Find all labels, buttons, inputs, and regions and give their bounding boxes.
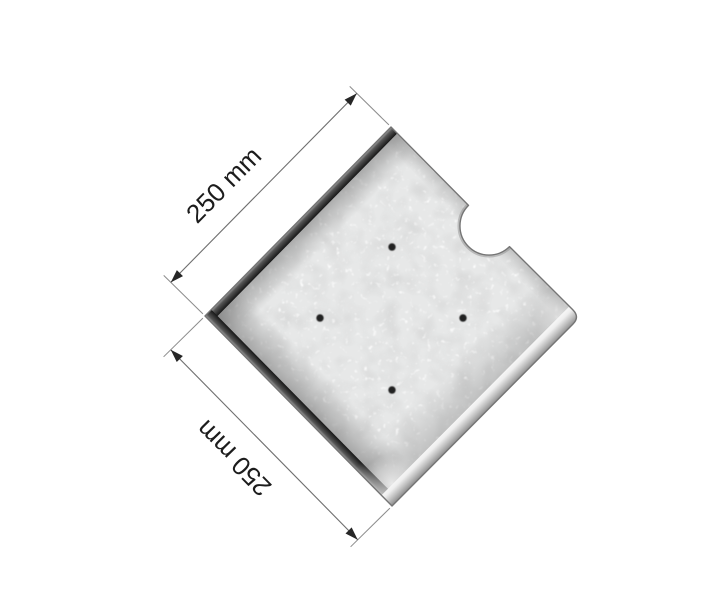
- extension-line: [164, 318, 203, 357]
- extension-line: [164, 275, 203, 314]
- hole-dot: [316, 314, 323, 321]
- hole-dot: [388, 243, 395, 250]
- plate-diagram: 250 mm 250 mm: [0, 0, 712, 600]
- drawing-canvas: 250 mm 250 mm: [0, 0, 712, 600]
- dimension-label: 250 mm: [190, 414, 277, 502]
- hole-dot: [459, 314, 466, 321]
- notch-inner-shadow: [460, 205, 510, 255]
- extension-line: [351, 508, 390, 547]
- extension-line: [350, 86, 389, 125]
- dimension-label: 250 mm: [180, 141, 267, 229]
- hole-dot: [388, 386, 395, 393]
